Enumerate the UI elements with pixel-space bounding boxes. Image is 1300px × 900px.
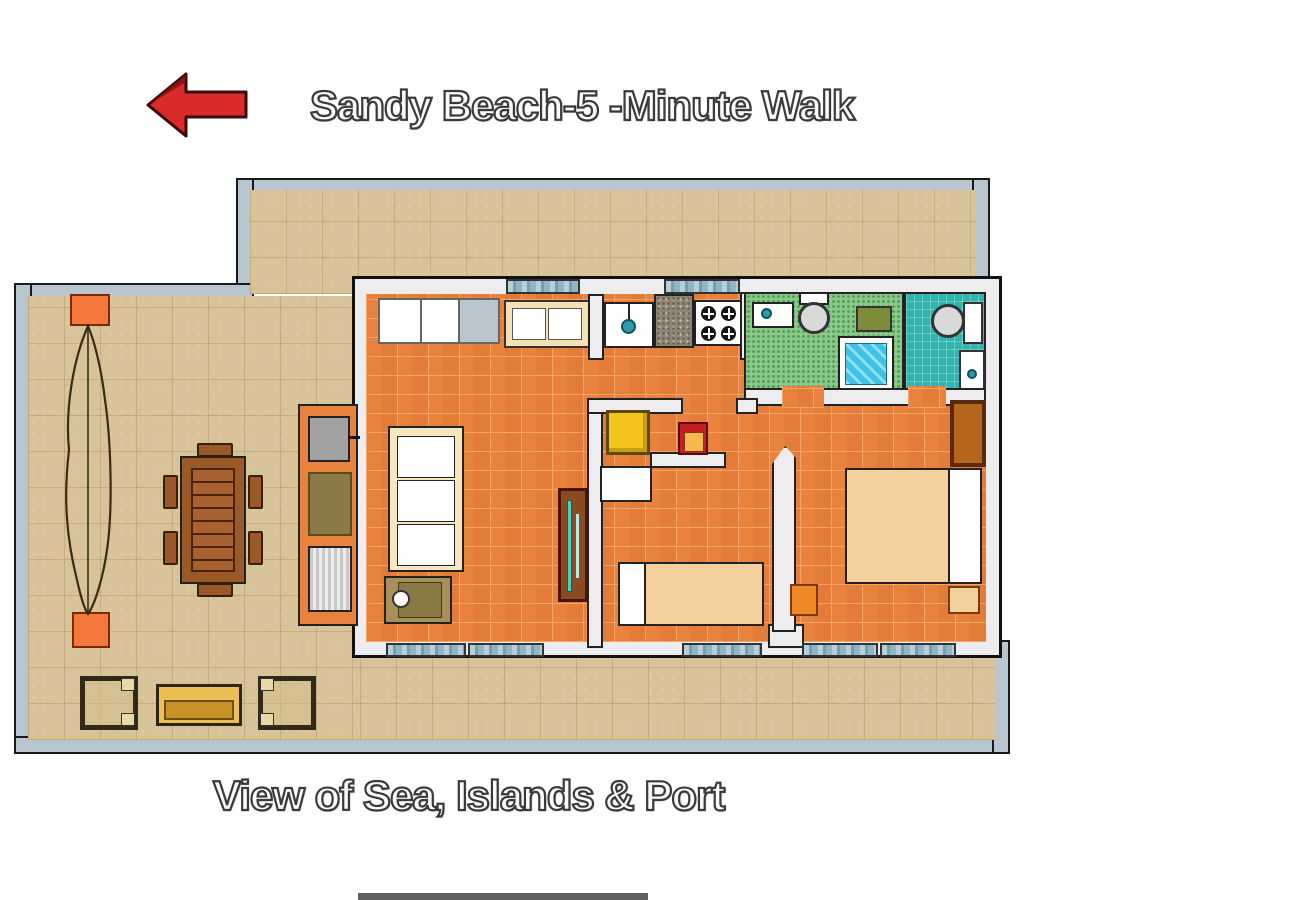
armchair-pad — [121, 678, 135, 691]
dining-chair — [197, 443, 233, 457]
bottom-artifact-bar — [358, 893, 648, 900]
sideboard-door-2 — [548, 308, 582, 340]
teal-bath-toilet-bowl — [931, 304, 965, 338]
wardrobe — [950, 400, 986, 467]
floor-plan-page: Sandy Beach-5 -Minute Walk — [0, 0, 1300, 900]
teal-bath-bidet-drain — [967, 369, 977, 379]
tv-cabinet-glass — [567, 500, 572, 592]
granite-counter — [654, 294, 694, 348]
hall-wall-stub — [736, 398, 758, 414]
dining-table-slats — [191, 468, 235, 572]
kitchen-wall-stub — [588, 294, 604, 360]
beach-direction-arrow-icon — [145, 70, 249, 140]
dining-chair — [197, 583, 233, 597]
green-bath-washbasin — [752, 302, 794, 328]
nightstand-tan — [948, 586, 980, 614]
dining-chair — [248, 531, 263, 565]
double-bedroom-window-1 — [802, 643, 878, 657]
kitchen-top-window-2 — [664, 279, 740, 294]
yellow-table — [606, 410, 650, 455]
bbq-handle — [348, 436, 360, 439]
outdoor-counter — [308, 472, 352, 536]
bath-mat — [856, 306, 892, 332]
green-bath-basin-drain — [761, 308, 772, 319]
living-window-pane-1 — [378, 298, 422, 344]
single-bed-pillow — [618, 562, 646, 626]
bench-seat — [164, 700, 234, 720]
double-bed-pillows — [948, 468, 982, 584]
sea-view-caption: View of Sea, Islands & Port — [213, 772, 724, 820]
nightstand-orange — [790, 584, 818, 616]
stove-burner — [721, 326, 736, 341]
closet — [600, 466, 652, 502]
armchair-pad — [260, 713, 274, 726]
double-bedroom-window-2 — [880, 643, 956, 657]
living-bedroom-wall — [587, 404, 603, 648]
teal-bath-toilet-tank — [963, 302, 983, 344]
stove-burner — [721, 306, 736, 321]
stove-burner — [701, 326, 716, 341]
tv-cabinet — [558, 488, 588, 602]
dining-chair — [248, 475, 263, 509]
climbing-plant — [55, 320, 125, 618]
dining-chair — [163, 475, 178, 509]
armchair-pad — [121, 713, 135, 726]
sofa-cushion — [397, 480, 455, 522]
coffee-table-plate — [392, 590, 410, 608]
living-window-pane-3 — [458, 298, 500, 344]
sofa-cushion — [397, 524, 455, 566]
green-bath-door-opening — [782, 386, 824, 408]
beach-walk-title: Sandy Beach-5 -Minute Walk — [310, 82, 854, 130]
tv-cabinet-glass-2 — [576, 514, 579, 578]
teal-bath-door-opening — [908, 386, 946, 408]
gas-stove — [694, 300, 742, 346]
dining-chair — [163, 531, 178, 565]
green-bath-toilet-bowl — [798, 302, 830, 334]
stove-burner — [701, 306, 716, 321]
sideboard-door-1 — [512, 308, 546, 340]
kitchen-top-window-1 — [506, 279, 580, 294]
double-bed — [845, 468, 950, 584]
shower-water — [845, 343, 887, 385]
sofa-cushion — [397, 436, 455, 478]
living-terrace-window-2 — [468, 643, 544, 657]
living-window-pane-2 — [420, 298, 460, 344]
red-cabinet-inner — [684, 432, 704, 452]
single-bedroom-window — [682, 643, 762, 657]
bbq-grill — [308, 416, 350, 462]
grill-grate — [308, 546, 352, 612]
kitchen-sink-drain — [621, 319, 636, 334]
living-terrace-window-1 — [386, 643, 466, 657]
armchair-pad — [260, 678, 274, 691]
